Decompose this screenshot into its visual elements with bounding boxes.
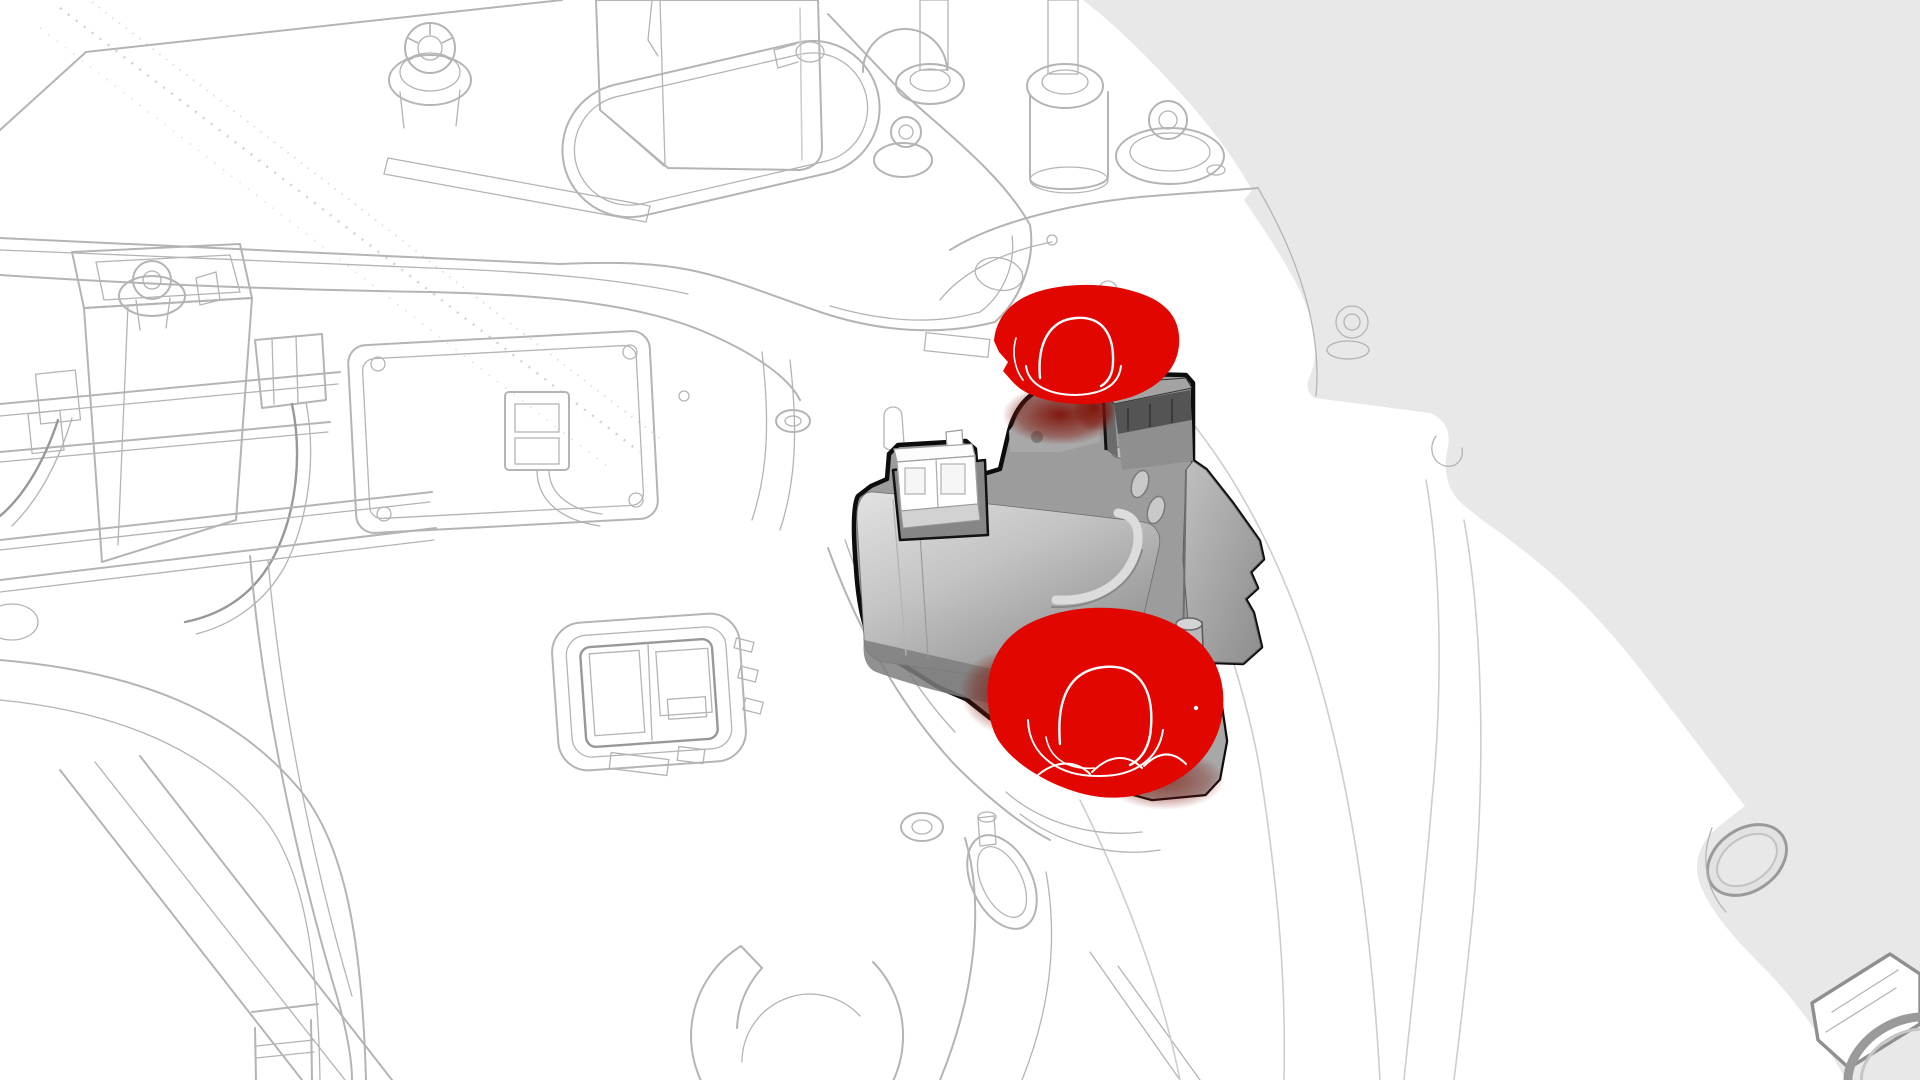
fastener-highlight-top[interactable]: [994, 285, 1179, 404]
engine-bay-illustration: [0, 0, 1920, 1080]
red-highlight-blob: [994, 285, 1179, 404]
illustration-canvas: [0, 0, 1920, 1080]
